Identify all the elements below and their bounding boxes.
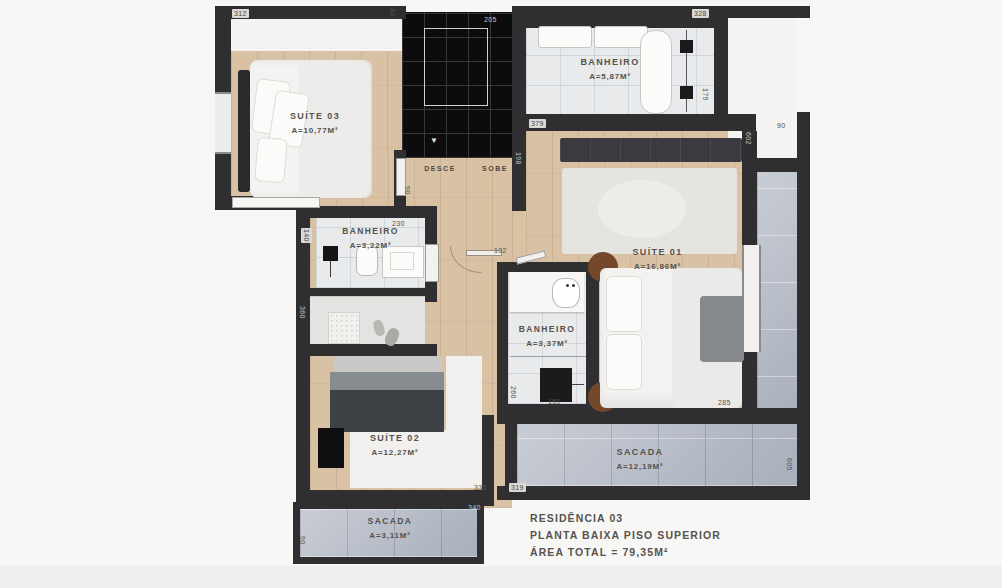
dim-label: 90 <box>404 186 411 195</box>
floor-balcony-right-strip <box>757 172 797 424</box>
bed-cabinet-suite01 <box>700 296 744 362</box>
dim-label: 40 <box>389 8 396 17</box>
room-area: A=10,77M² <box>240 124 390 138</box>
dim-label: 360 <box>299 306 306 319</box>
towel-square <box>680 86 693 99</box>
wall-segment <box>497 408 800 424</box>
faucet-dot <box>572 284 575 287</box>
dim-label: 340 <box>468 504 481 511</box>
closet-stack <box>328 312 360 344</box>
dim-label: 140 <box>301 228 312 243</box>
room-name: SUÍTE 02 <box>320 430 470 446</box>
residence-title: RESIDÊNCIA 03 <box>530 510 850 527</box>
dim-label: 312 <box>232 9 249 18</box>
room-label-balcony-right: SACADA A=12,19M² <box>565 444 715 475</box>
shower-valve-line <box>572 384 584 385</box>
stairs-desce-label: DESCE <box>414 165 466 172</box>
dim-label: 319 <box>509 483 526 492</box>
wall-segment <box>742 131 757 245</box>
shower-glass-line <box>510 356 586 357</box>
wall-segment <box>526 6 714 28</box>
sink <box>538 26 592 48</box>
room-area: A=3,11M² <box>315 529 465 543</box>
wall-segment <box>497 262 508 416</box>
bed-blanket-fold-suite02 <box>330 372 444 390</box>
wall-segment <box>512 6 526 211</box>
dim-label: 328 <box>692 9 709 18</box>
dim-label: 90 <box>777 122 786 129</box>
room-name: BANHEIRO <box>540 54 680 70</box>
room-name: BANHEIRO <box>316 224 425 239</box>
room-area: A=12,27M² <box>320 446 470 460</box>
wall-segment <box>482 415 494 493</box>
door-bath-left <box>425 244 439 282</box>
room-label-suite03: SUÍTE 03 A=10,77M² <box>240 108 390 139</box>
stairs-down-arrow-icon: ▼ <box>430 136 438 145</box>
pillow <box>254 137 288 183</box>
plan-subtitle: PLANTA BAIXA PISO SUPERIOR <box>530 527 850 544</box>
wall-segment <box>714 6 728 126</box>
bed-pillows-suite02 <box>334 356 442 372</box>
room-label-balcony-bottom: SACADA A=3,11M² <box>315 514 465 544</box>
wardrobe-suite01 <box>560 138 742 162</box>
room-label-suite02: SUÍTE 02 A=12,27M² <box>320 430 470 461</box>
dim-label: 179 <box>702 88 709 101</box>
room-name: BANHEIRO <box>508 322 586 337</box>
bottom-margin-strip <box>0 566 1002 588</box>
rug-oval <box>598 180 686 238</box>
dim-label: 379 <box>529 119 546 128</box>
vanity-basin <box>390 252 414 270</box>
window-suite03 <box>215 92 231 154</box>
title-block: RESIDÊNCIA 03 PLANTA BAIXA PISO SUPERIOR… <box>530 510 850 561</box>
dim-label: 198 <box>515 152 522 165</box>
sliding-door-suite01 <box>742 245 761 352</box>
dim-label: 260 <box>510 386 517 399</box>
room-name: SACADA <box>315 514 465 529</box>
stairs-inner-outline <box>424 28 488 106</box>
pillow <box>606 276 642 332</box>
wall-segment <box>296 344 437 356</box>
dim-label: 205 <box>484 16 497 23</box>
wall-segment <box>497 486 810 500</box>
room-label-bath-top: BANHEIRO A=5,87M² <box>540 54 680 85</box>
wall-segment <box>304 288 437 296</box>
room-name: SUÍTE 01 <box>585 244 730 260</box>
dim-label: 102 <box>494 247 507 254</box>
dim-label: 150 <box>548 398 561 405</box>
towel-square <box>680 40 693 53</box>
floor-plan-canvas: ▼ DESCE SOBE <box>0 0 1002 588</box>
shower-mat <box>540 368 572 402</box>
faucet-dot <box>566 284 569 287</box>
room-label-suite01: SUÍTE 01 A=16,86M² <box>585 244 730 275</box>
dim-label: 90 <box>299 536 306 545</box>
dim-label: 605 <box>786 458 793 471</box>
room-label-bath-center: BANHEIRO A=3,37M² <box>508 322 586 352</box>
floor-nook-top-right <box>728 18 797 158</box>
room-label-bath-left: BANHEIRO A=3,22M² <box>316 224 425 254</box>
room-area: A=3,37M² <box>508 337 586 351</box>
floor-suite03-top-strip <box>231 19 402 51</box>
room-area: A=12,19M² <box>565 460 715 474</box>
wall-segment <box>714 6 810 18</box>
room-area: A=3,22M² <box>316 239 425 253</box>
room-name: SUÍTE 03 <box>240 108 390 124</box>
shower-stem <box>330 261 331 277</box>
wall-segment <box>526 114 756 131</box>
dim-label: 602 <box>745 132 752 145</box>
wall-segment <box>505 416 517 493</box>
dim-label: 285 <box>718 399 731 406</box>
dim-label: 335 <box>474 484 487 491</box>
sink <box>552 278 580 308</box>
pillow <box>606 334 642 390</box>
room-area: A=5,87M² <box>540 70 680 84</box>
total-area: ÁREA TOTAL = 79,35M² <box>530 544 850 561</box>
dresser-suite03 <box>232 197 320 208</box>
dim-label: 230 <box>392 220 405 227</box>
room-name: SACADA <box>565 444 715 460</box>
wall-segment <box>304 206 437 218</box>
room-area: A=16,86M² <box>585 260 730 274</box>
bed-blanket-suite02 <box>330 390 444 432</box>
